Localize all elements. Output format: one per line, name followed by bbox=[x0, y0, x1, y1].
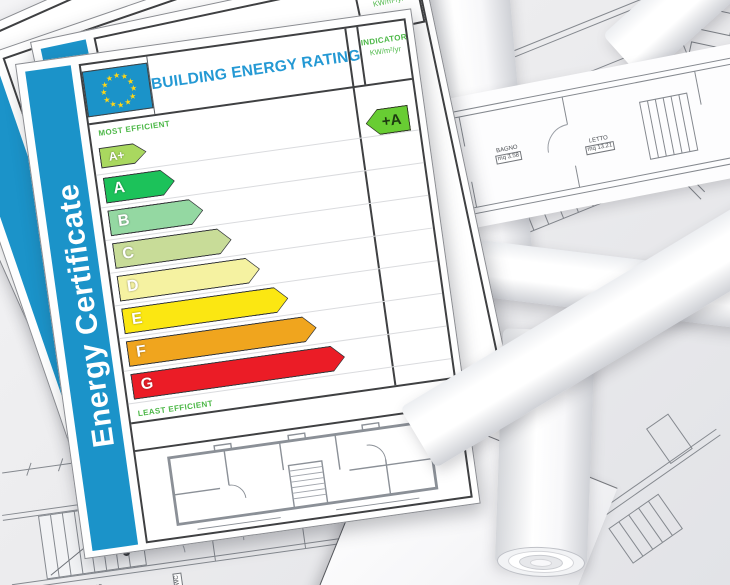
rating-letter: A bbox=[104, 179, 126, 200]
flag-cell: ★★★ ★★★ ★★★ ★★★ bbox=[81, 57, 155, 124]
certificate-table: ★★★ ★★★ ★★★ ★★★ BUILDING ENERGY RATING I… bbox=[79, 18, 473, 543]
rating-letter: G bbox=[132, 375, 155, 396]
room-label-wc: WC bbox=[172, 573, 183, 585]
rating-letter: D bbox=[118, 277, 140, 298]
indicator-cell: INDICATOR KW/m²/yr bbox=[357, 20, 413, 84]
rating-letter: A+ bbox=[100, 148, 125, 165]
rating-badge-label: +A bbox=[373, 110, 403, 131]
title-cell: BUILDING ENERGY RATING bbox=[147, 27, 364, 114]
rating-letter: C bbox=[113, 244, 135, 265]
energy-certificate-sheet: Energy Certificate ★★★ ★★★ ★★★ ★★★ BUILD… bbox=[15, 8, 481, 559]
rating-letter: B bbox=[109, 212, 131, 233]
eu-flag-icon: ★★★ ★★★ ★★★ ★★★ bbox=[82, 63, 154, 118]
rating-arrow-A+: A+ bbox=[98, 141, 147, 168]
rating-letter: E bbox=[123, 310, 144, 330]
photo-scene: BAGNO mq 3.58 LETTO mq 13.21 bbox=[0, 0, 730, 585]
certificate-title: BUILDING ENERGY RATING bbox=[150, 47, 362, 94]
rating-letter: F bbox=[127, 343, 147, 363]
rating-scale: A+ABCDEFG bbox=[92, 98, 452, 405]
